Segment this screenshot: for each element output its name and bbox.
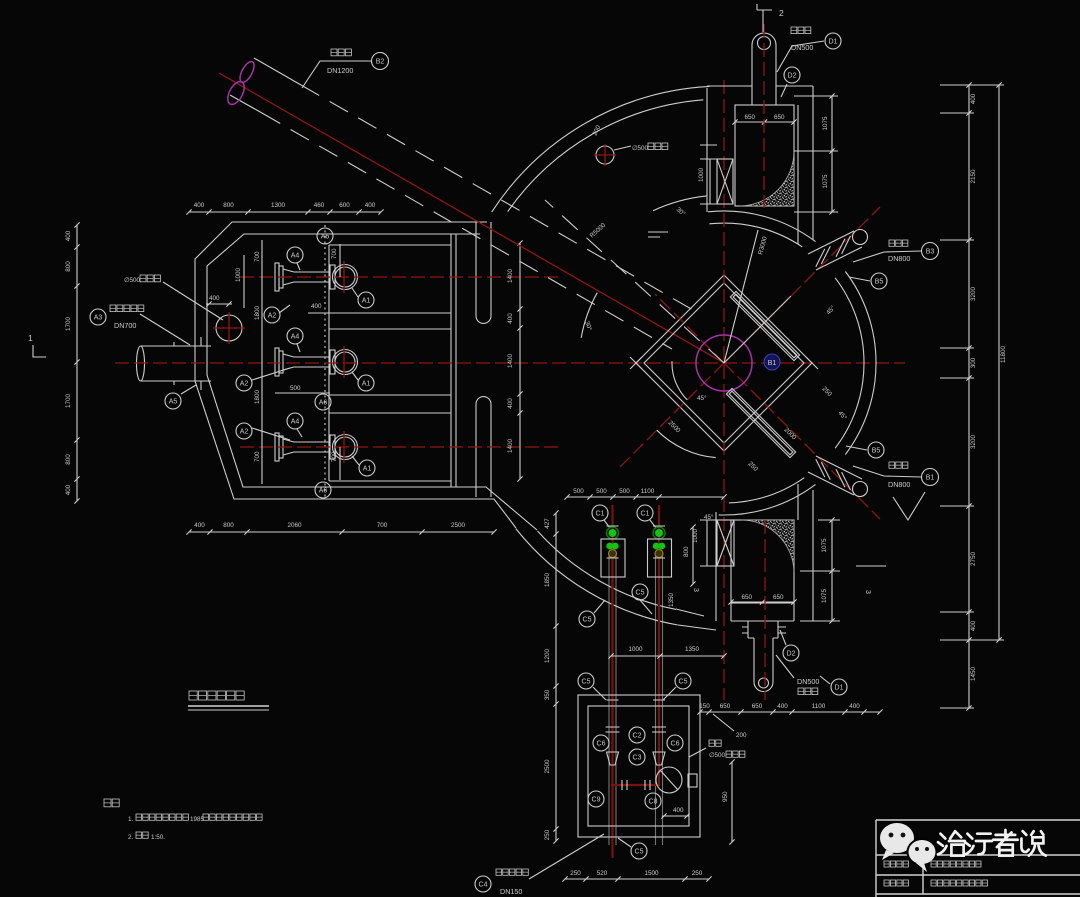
svg-text:250: 250 — [570, 870, 581, 877]
svg-text:400: 400 — [365, 202, 376, 209]
svg-text:1000: 1000 — [235, 267, 242, 282]
svg-text:2060: 2060 — [287, 522, 302, 529]
svg-text:A2: A2 — [268, 312, 277, 319]
svg-text:A6: A6 — [319, 399, 328, 406]
svg-text:400: 400 — [65, 484, 72, 495]
svg-text:950: 950 — [722, 791, 729, 802]
svg-text:A6: A6 — [321, 233, 330, 240]
svg-text:650: 650 — [720, 703, 731, 710]
svg-text:1500: 1500 — [644, 870, 659, 877]
svg-text:C5: C5 — [635, 848, 644, 855]
svg-text:1800: 1800 — [254, 305, 261, 320]
svg-text:DN500: DN500 — [797, 677, 819, 686]
svg-text:427: 427 — [544, 518, 551, 529]
svg-text:2500: 2500 — [544, 759, 551, 774]
svg-text:800: 800 — [223, 522, 234, 529]
svg-text:700: 700 — [331, 451, 338, 462]
svg-text:C1: C1 — [596, 510, 605, 517]
svg-text:1000: 1000 — [698, 167, 705, 182]
svg-text:800: 800 — [65, 454, 72, 465]
svg-text:A1: A1 — [362, 380, 371, 387]
svg-text:C4: C4 — [479, 881, 488, 888]
svg-text:1075: 1075 — [821, 538, 828, 553]
svg-text:A1: A1 — [363, 465, 372, 472]
svg-text:150: 150 — [699, 703, 710, 710]
svg-text:400: 400 — [209, 295, 220, 302]
svg-text:700: 700 — [331, 248, 338, 259]
svg-text:C2: C2 — [633, 732, 642, 739]
svg-text:400: 400 — [849, 703, 860, 710]
svg-text:1: 1 — [28, 333, 33, 343]
svg-text:1100: 1100 — [812, 703, 826, 710]
svg-text:∅500: ∅500 — [709, 752, 725, 759]
svg-text:650: 650 — [773, 594, 784, 601]
svg-text:D1: D1 — [829, 38, 838, 45]
svg-text:DN500: DN500 — [791, 43, 813, 52]
svg-text:A2: A2 — [240, 380, 249, 387]
svg-text:C5: C5 — [679, 678, 688, 685]
svg-text:650: 650 — [774, 114, 785, 121]
svg-text:C5: C5 — [582, 678, 591, 685]
svg-text:400: 400 — [194, 202, 205, 209]
svg-text:B1: B1 — [926, 474, 935, 481]
svg-text:∅500: ∅500 — [632, 145, 648, 152]
svg-text:800: 800 — [683, 546, 690, 557]
svg-text:B3: B3 — [926, 248, 935, 255]
svg-text:1.: 1. — [128, 816, 134, 823]
svg-text:460: 460 — [314, 202, 325, 209]
svg-text:1450: 1450 — [970, 667, 977, 682]
svg-text:3200: 3200 — [970, 287, 977, 302]
svg-text:A4: A4 — [291, 333, 300, 340]
svg-text:600: 600 — [339, 202, 350, 209]
svg-text:400: 400 — [970, 93, 977, 104]
svg-text:B5: B5 — [872, 447, 881, 454]
svg-text:A1: A1 — [362, 297, 371, 304]
svg-text:650: 650 — [752, 703, 763, 710]
svg-text:800: 800 — [223, 202, 234, 209]
svg-text:B2: B2 — [376, 58, 385, 65]
svg-text:A4: A4 — [291, 418, 300, 425]
svg-text:1350: 1350 — [685, 646, 700, 653]
svg-text:800: 800 — [65, 261, 72, 272]
svg-text:520: 520 — [597, 870, 608, 877]
svg-text:400: 400 — [65, 230, 72, 241]
svg-text:250: 250 — [692, 870, 703, 877]
svg-text:2500: 2500 — [451, 522, 466, 529]
svg-text:700: 700 — [254, 251, 261, 262]
svg-text:350: 350 — [544, 689, 551, 700]
svg-text:45°: 45° — [697, 394, 707, 402]
svg-text:500: 500 — [573, 488, 584, 495]
svg-text:1000: 1000 — [628, 646, 643, 653]
svg-text:650: 650 — [741, 594, 752, 601]
svg-text:1100: 1100 — [641, 488, 655, 495]
svg-text:1850: 1850 — [544, 573, 551, 588]
svg-text:A4: A4 — [291, 252, 300, 259]
svg-text:400: 400 — [673, 807, 684, 814]
svg-text:C6: C6 — [597, 740, 606, 747]
svg-text:400: 400 — [507, 313, 514, 324]
svg-text:DN700: DN700 — [114, 321, 136, 330]
svg-text:1075: 1075 — [822, 116, 829, 131]
svg-text:250: 250 — [544, 829, 551, 840]
svg-text:D1: D1 — [835, 684, 844, 691]
svg-text:3: 3 — [692, 588, 699, 592]
svg-text:700: 700 — [254, 451, 261, 462]
svg-text:1700: 1700 — [65, 394, 72, 409]
svg-text:A3: A3 — [94, 314, 103, 321]
svg-text:400: 400 — [194, 522, 205, 529]
svg-text:1:50.: 1:50. — [151, 834, 165, 841]
svg-text:400: 400 — [970, 620, 977, 631]
svg-text:1075: 1075 — [822, 174, 829, 189]
svg-text:400: 400 — [311, 303, 322, 310]
svg-text:500: 500 — [596, 488, 607, 495]
svg-text:C9: C9 — [592, 796, 601, 803]
svg-text:C5: C5 — [636, 589, 645, 596]
svg-text:D2: D2 — [788, 72, 797, 79]
svg-text:1400: 1400 — [507, 354, 514, 369]
svg-text:400: 400 — [507, 398, 514, 409]
svg-text:B5: B5 — [875, 278, 884, 285]
svg-text:1350: 1350 — [668, 592, 675, 607]
svg-text:2150: 2150 — [970, 169, 977, 184]
svg-text:B1: B1 — [768, 360, 777, 367]
svg-text:1400: 1400 — [507, 439, 514, 454]
svg-text:DN800: DN800 — [888, 480, 910, 489]
svg-text:11800: 11800 — [1000, 345, 1007, 363]
svg-text:500: 500 — [619, 488, 630, 495]
svg-text:C1: C1 — [641, 510, 650, 517]
svg-text:1200: 1200 — [544, 649, 551, 664]
svg-text:2: 2 — [779, 8, 784, 18]
svg-text:1300: 1300 — [271, 202, 286, 209]
svg-text:1985: 1985 — [190, 816, 205, 823]
svg-text:2750: 2750 — [970, 552, 977, 567]
svg-text:DN150: DN150 — [500, 887, 522, 896]
svg-text:C8: C8 — [649, 798, 658, 805]
svg-text:1075: 1075 — [821, 589, 828, 604]
svg-text:650: 650 — [744, 114, 755, 121]
svg-text:A6: A6 — [319, 487, 328, 494]
svg-text:1800: 1800 — [254, 389, 261, 404]
svg-text:1400: 1400 — [507, 269, 514, 284]
svg-text:700: 700 — [377, 522, 388, 529]
svg-text:C3: C3 — [633, 754, 642, 761]
svg-text:A5: A5 — [169, 398, 178, 405]
svg-text:500: 500 — [290, 385, 301, 392]
svg-text:A2: A2 — [240, 428, 249, 435]
svg-text:400: 400 — [777, 703, 788, 710]
svg-text:1700: 1700 — [65, 317, 72, 332]
svg-text:C5: C5 — [583, 616, 592, 623]
svg-text:3: 3 — [864, 590, 871, 594]
svg-text:DN800: DN800 — [888, 254, 910, 263]
svg-text:D2: D2 — [787, 650, 796, 657]
svg-text:DN1200: DN1200 — [327, 66, 353, 75]
svg-text:300: 300 — [970, 357, 977, 368]
svg-text:200: 200 — [736, 732, 747, 739]
svg-text:C6: C6 — [671, 740, 680, 747]
svg-text:2.: 2. — [128, 834, 134, 841]
svg-text:3200: 3200 — [970, 435, 977, 450]
svg-text:∅500: ∅500 — [124, 277, 140, 284]
